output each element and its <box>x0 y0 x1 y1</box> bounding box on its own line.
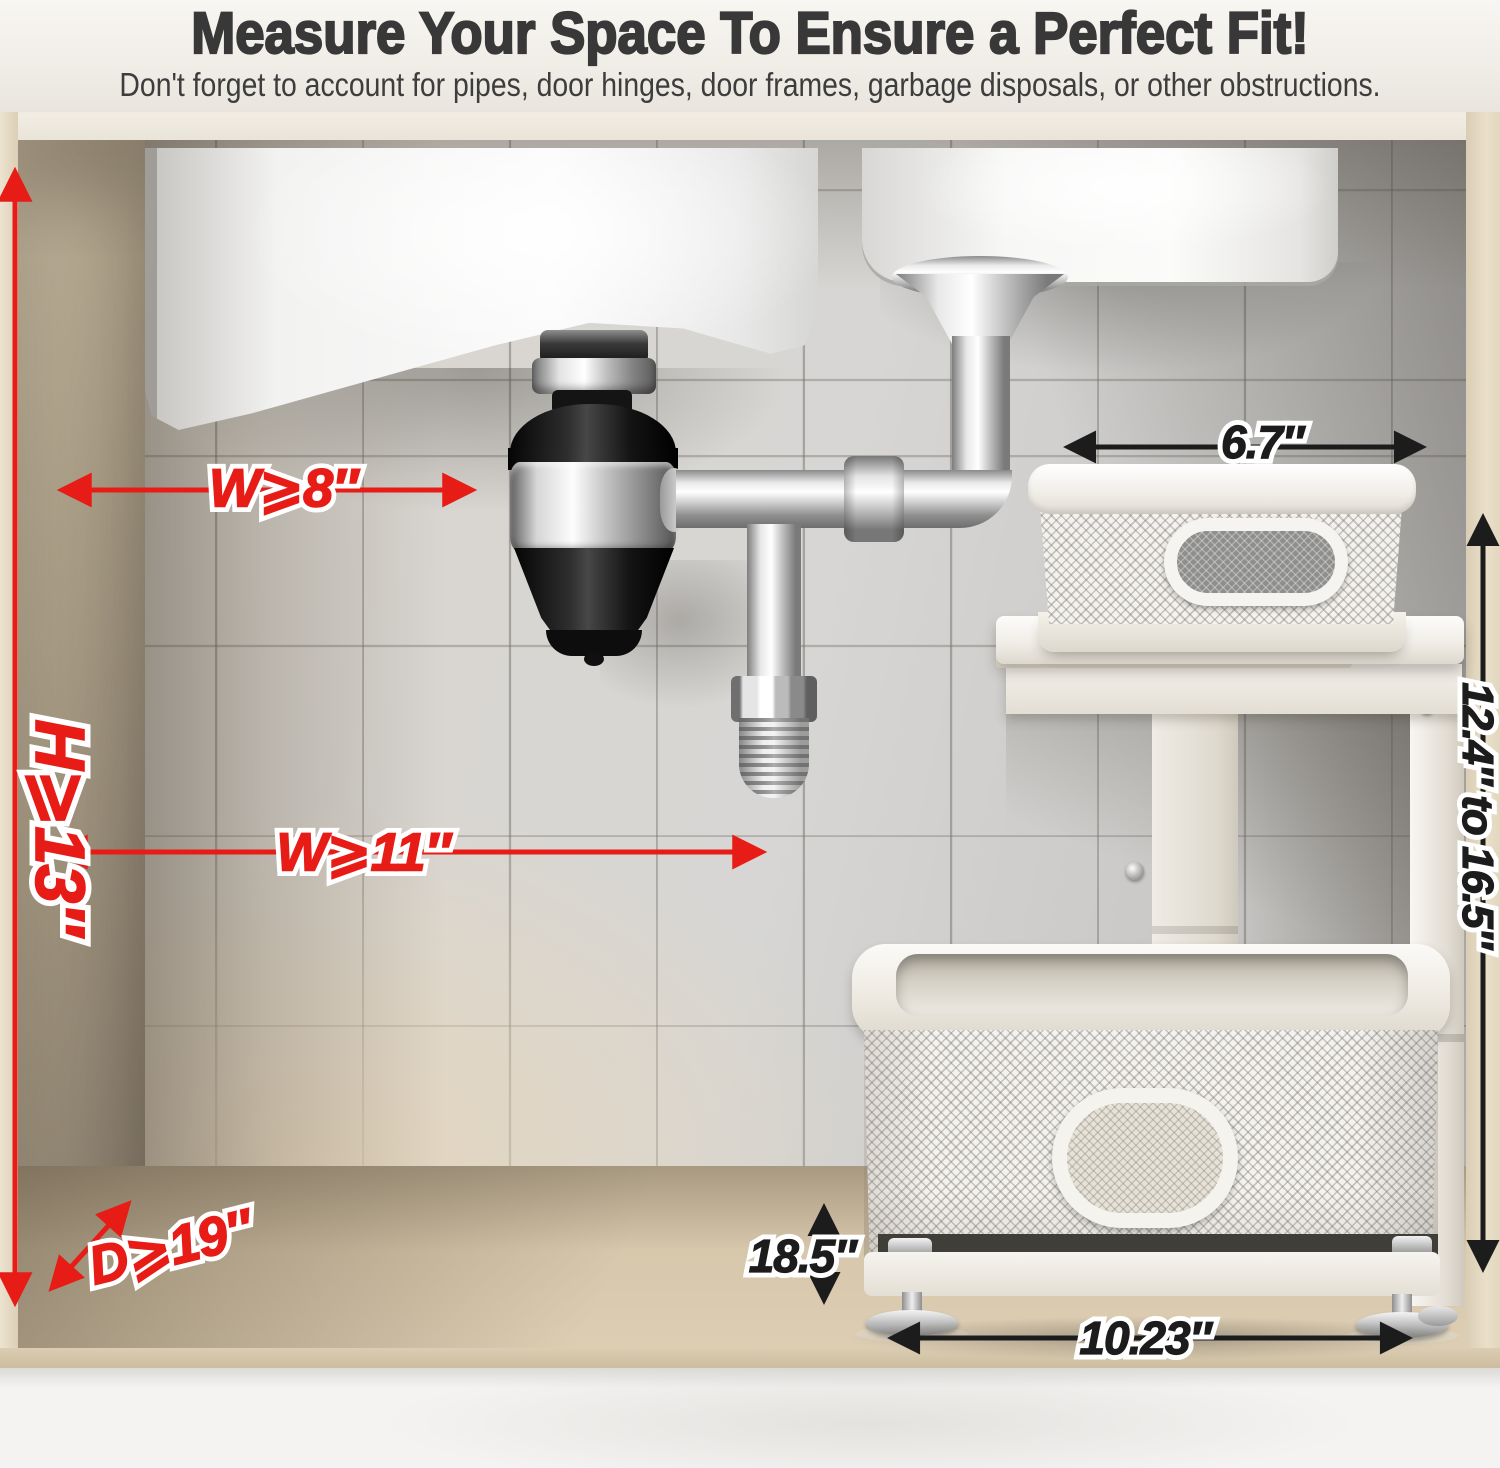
tailpiece-threaded-end <box>739 718 809 798</box>
drain-downpipe <box>952 336 1010 486</box>
page-title: Measure Your Space To Ensure a Perfect F… <box>68 2 1433 66</box>
header-band: Measure Your Space To Ensure a Perfect F… <box>0 0 1500 112</box>
disposal-width-label: W⩾8″ W⩾8″ <box>209 457 357 520</box>
bottom-width-label: 10.23″ 10.23″ <box>1079 1311 1210 1365</box>
page-subtitle: Don't forget to account for pipes, door … <box>105 64 1395 106</box>
marble-floor <box>0 1368 1500 1468</box>
adjustment-screw <box>1126 862 1144 880</box>
bottom-depth-label: 18.5″ 18.5″ <box>749 1229 856 1283</box>
bottom-basket-handle <box>1052 1088 1238 1228</box>
width-label: W⩾11″ W⩾11″ <box>276 821 449 884</box>
tailpiece-pipe <box>747 524 801 682</box>
shelf-width-label: 6.7″ 6.7″ <box>1221 415 1303 469</box>
tailpiece-hex-nut <box>731 676 817 722</box>
top-basket-window <box>1164 518 1348 606</box>
disposal-clamp-ring <box>532 358 656 394</box>
disposal-bottom-nub <box>584 652 604 666</box>
infographic-page: Measure Your Space To Ensure a Perfect F… <box>0 0 1500 1468</box>
bottom-basket-interior <box>896 954 1408 1016</box>
height-label: H⩾13″ H⩾13″ <box>19 719 101 935</box>
disposal-chrome-band <box>510 462 676 552</box>
frame-top-beam <box>1006 664 1462 714</box>
bottom-basket-base-rail <box>864 1252 1440 1296</box>
cabinet-left-wall <box>18 140 145 1170</box>
top-basket-lid <box>1028 464 1416 514</box>
cabinet-left-edge <box>0 112 18 1368</box>
pipe-compression-nut <box>844 456 904 542</box>
adjustable-height-label: 12.4″ to 16.5″ 12.4″ to 16.5″ <box>1452 682 1500 947</box>
